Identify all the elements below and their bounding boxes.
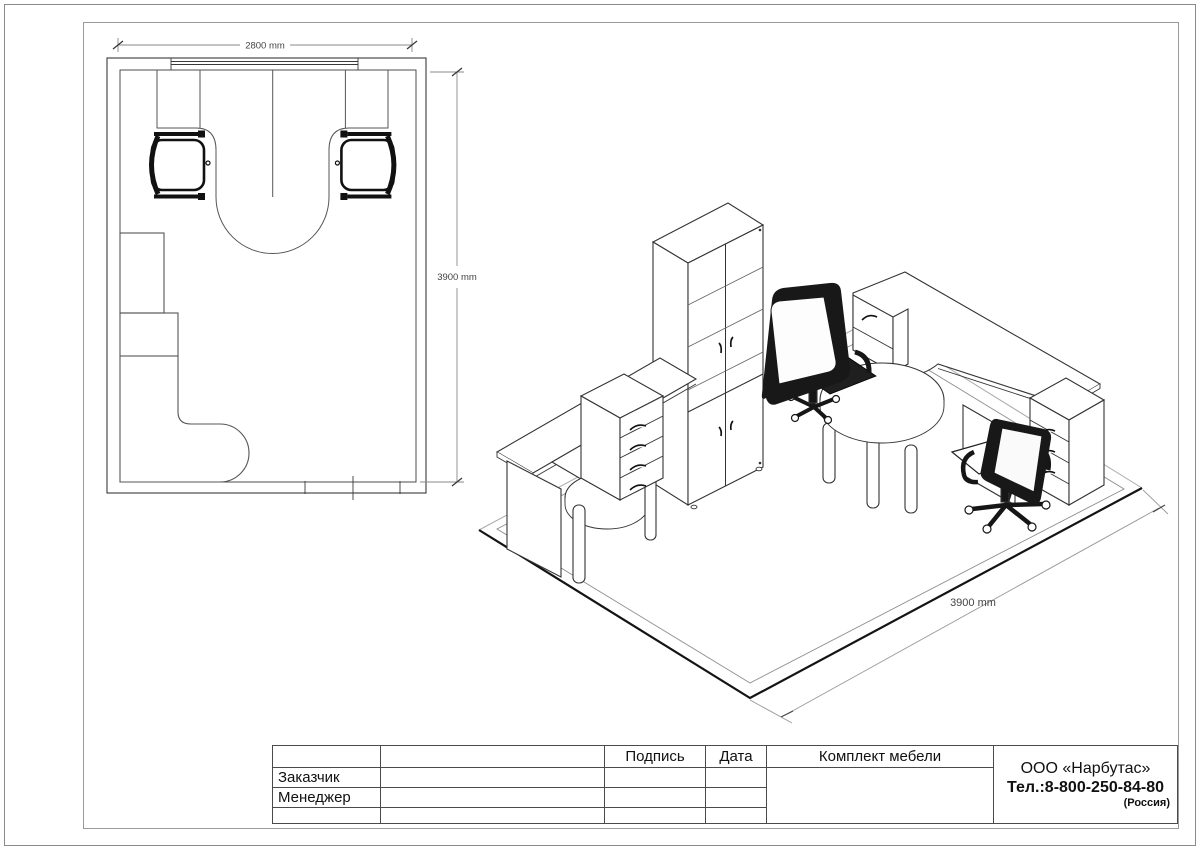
iso-cabinet bbox=[653, 203, 763, 509]
set-content-cell bbox=[767, 768, 994, 824]
iso-left-pedestal bbox=[581, 374, 663, 500]
manager-date-cell bbox=[706, 788, 767, 808]
dimension-width: 2800 mm bbox=[113, 38, 417, 52]
drawing-sheet: 2800 mm 3900 mm bbox=[0, 0, 1200, 850]
title-cell-empty bbox=[273, 808, 381, 824]
company-phone: Тел.:8-800-250-84-80 bbox=[994, 778, 1177, 797]
customer-value-cell bbox=[381, 768, 605, 788]
drawing-canvas: 2800 mm 3900 mm bbox=[0, 0, 1200, 850]
dimension-height: 3900 mm bbox=[420, 68, 477, 486]
manager-signature-cell bbox=[605, 788, 706, 808]
company-info: ООО «Нарбутас» Тел.:8-800-250-84-80 (Рос… bbox=[994, 746, 1178, 824]
manager-label: Менеджер bbox=[273, 788, 381, 808]
customer-signature-cell bbox=[605, 768, 706, 788]
dimension-height-label: 3900 mm bbox=[437, 272, 477, 283]
title-cell-empty bbox=[605, 808, 706, 824]
set-title: Комплект мебели bbox=[767, 746, 994, 768]
title-cell-empty bbox=[706, 808, 767, 824]
cabinet-footprint bbox=[120, 233, 164, 313]
signature-header: Подпись bbox=[605, 746, 706, 768]
company-country: (Россия) bbox=[994, 797, 1177, 810]
iso-view: 3900 mm bbox=[479, 203, 1168, 723]
room-walls bbox=[107, 58, 426, 493]
chair-left-plan bbox=[152, 131, 211, 201]
pedestal-footprint bbox=[120, 313, 178, 356]
iso-dimension-label: 3900 mm bbox=[950, 597, 996, 609]
customer-label: Заказчик bbox=[273, 768, 381, 788]
door-opening bbox=[305, 476, 400, 500]
title-cell-empty bbox=[381, 808, 605, 824]
title-cell-empty bbox=[273, 746, 381, 768]
floor-plan: 2800 mm 3900 mm bbox=[107, 38, 477, 500]
dimension-width-label: 2800 mm bbox=[245, 41, 285, 52]
manager-value-cell bbox=[381, 788, 605, 808]
title-cell-empty bbox=[381, 746, 605, 768]
l-desk-footprint bbox=[120, 356, 249, 482]
iso-dimension: 3900 mm bbox=[750, 490, 1168, 723]
title-block: Подпись Дата Комплект мебели ООО «Нарбут… bbox=[272, 745, 1178, 824]
company-name: ООО «Нарбутас» bbox=[994, 759, 1177, 778]
customer-date-cell bbox=[706, 768, 767, 788]
date-header: Дата bbox=[706, 746, 767, 768]
window bbox=[171, 58, 358, 70]
desk-unit-plan bbox=[157, 70, 388, 254]
chair-right-plan bbox=[335, 131, 394, 201]
